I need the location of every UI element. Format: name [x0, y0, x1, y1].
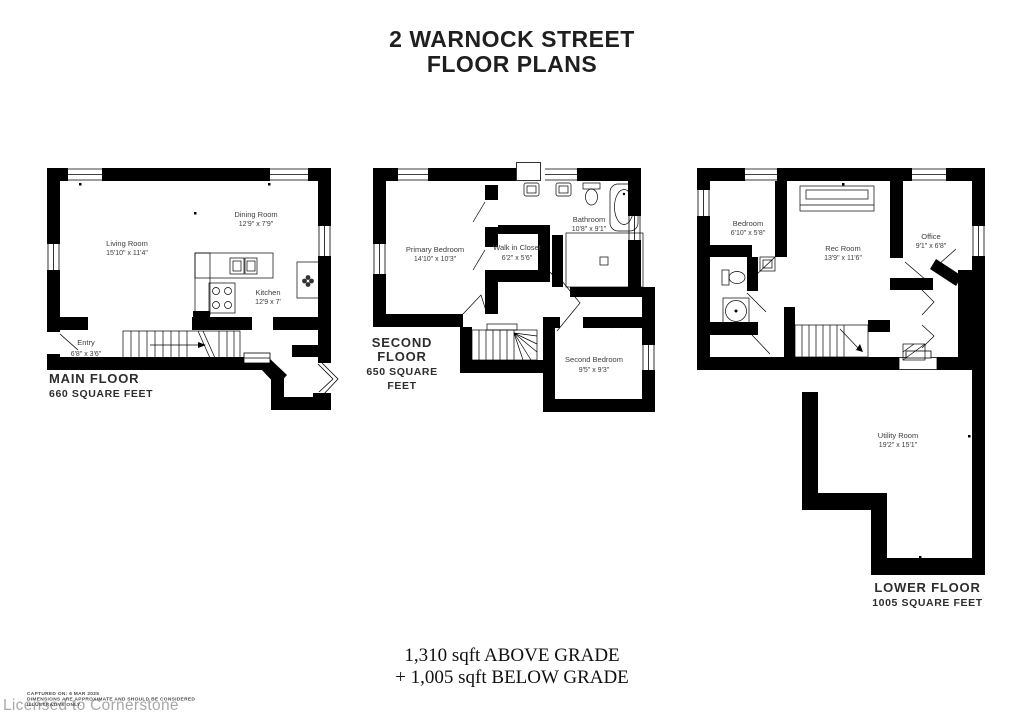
room-label: Utility Room — [878, 431, 918, 440]
room-dims: 10'8" x 9'1" — [572, 226, 607, 233]
room-label: Rec Room — [825, 244, 860, 253]
room-dims: 6'8" x 3'6" — [71, 351, 102, 358]
below-grade-area: + 1,005 sqft BELOW GRADE — [362, 667, 662, 689]
room-label: Living Room — [106, 239, 148, 248]
fan-icon — [297, 262, 320, 298]
chimney — [517, 163, 541, 181]
sink-icon — [524, 183, 571, 196]
disclaimer: CAPTURED ON: 6 MAR 2025 DIMENSIONS ARE A… — [27, 691, 426, 707]
stairs — [795, 325, 868, 357]
door — [747, 249, 956, 354]
room-dims: 15'10" x 11'4" — [106, 250, 148, 257]
toilet-icon — [583, 183, 600, 205]
floor-name: LOWER FLOOR — [850, 581, 1005, 595]
room-label: Kitchen — [255, 288, 280, 297]
room-dims: 12'9" x 7'9" — [239, 221, 274, 228]
floor-area: 650 SQUARE FEET — [350, 365, 454, 393]
stairs — [472, 324, 537, 360]
room-dims: 13'9" x 11'6" — [824, 255, 862, 262]
room-dims: 14'10" x 10'3" — [414, 256, 457, 263]
floor-area: 660 SQUARE FEET — [49, 387, 153, 401]
room-label: Bathroom — [573, 215, 606, 224]
area-summary: 1,310 sqft ABOVE GRADE + 1,005 sqft BELO… — [362, 645, 662, 688]
lower-floor-caption: LOWER FLOOR 1005 SQUARE FEET — [850, 581, 1005, 610]
title-line2: FLOOR PLANS — [262, 52, 762, 77]
floor-name: MAIN FLOOR — [49, 372, 153, 386]
room-label: Primary Bedroom — [406, 245, 464, 254]
stairs — [123, 331, 240, 358]
floor-area: 1005 SQUARE FEET — [850, 596, 1005, 610]
lower-floor-plan: Bedroom 6'10" x 5'8" Rec Room 13'9" x 11… — [690, 158, 1000, 623]
bay-window — [318, 363, 338, 395]
above-grade-area: 1,310 sqft ABOVE GRADE — [362, 645, 662, 667]
room-dims: 6'2" x 5'6" — [502, 255, 533, 262]
room-label: Office — [921, 232, 940, 241]
shower-icon — [723, 298, 749, 324]
room-label: Dining Room — [234, 210, 277, 219]
sink-icon — [230, 258, 257, 274]
room-label: Bedroom — [733, 219, 763, 228]
title-line1: 2 WARNOCK STREET — [262, 27, 762, 52]
built-in-shelf — [800, 186, 874, 211]
disclaimer-line3: ILLUSTRATIVE ONLY. — [27, 702, 426, 707]
room-label: Walk in Closet — [493, 243, 542, 252]
room-dims: 9'1" x 6'8" — [916, 243, 947, 250]
page-title: 2 WARNOCK STREET FLOOR PLANS — [262, 27, 762, 77]
second-floor-caption: SECOND FLOOR 650 SQUARE FEET — [350, 336, 454, 393]
stove-icon — [209, 283, 235, 313]
room-label: Second Bedroom — [565, 355, 623, 364]
main-floor-caption: MAIN FLOOR 660 SQUARE FEET — [49, 372, 153, 401]
toilet-icon — [722, 270, 745, 285]
room-dims: 12'9 x 7' — [255, 299, 281, 306]
floor-name: SECOND FLOOR — [350, 336, 454, 364]
room-dims: 9'5" x 9'3" — [579, 367, 610, 374]
room-dims: 6'10" x 5'8" — [731, 230, 766, 237]
entry-door — [60, 334, 78, 350]
room-dims: 19'2" x 15'1" — [879, 442, 918, 449]
room-label: Entry — [77, 338, 95, 347]
window — [48, 169, 330, 363]
